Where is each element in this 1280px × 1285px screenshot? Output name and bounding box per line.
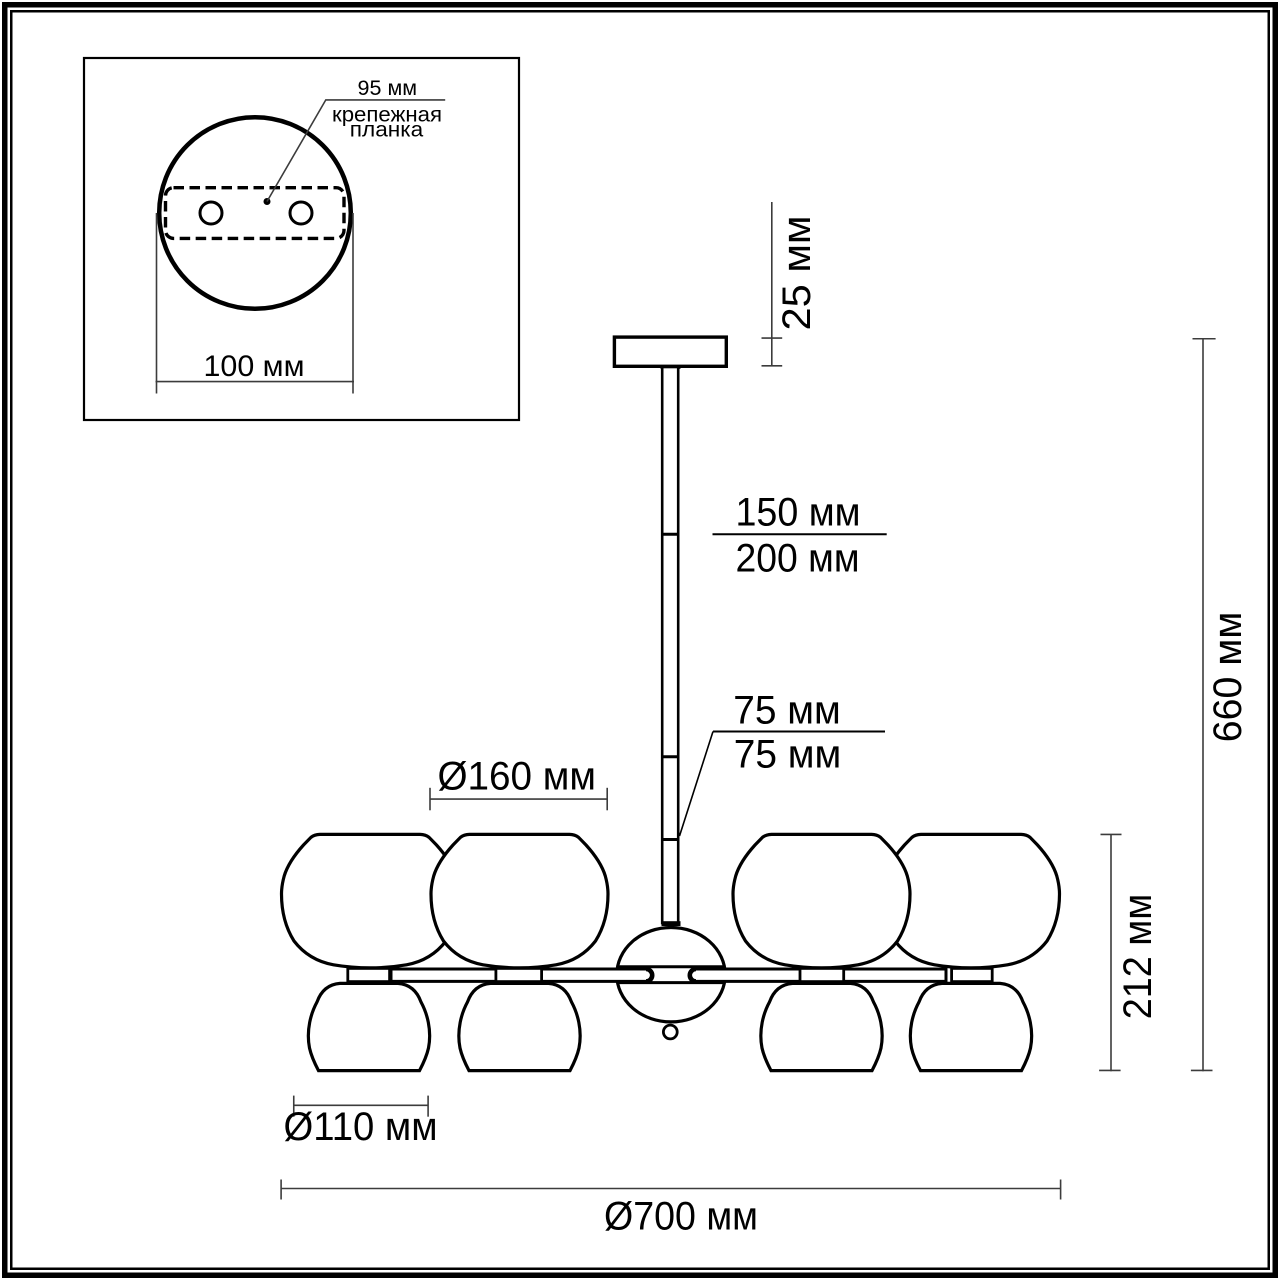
svg-text:100 мм: 100 мм xyxy=(204,350,305,383)
svg-text:200 мм: 200 мм xyxy=(736,536,860,580)
svg-text:95 мм: 95 мм xyxy=(358,77,418,100)
svg-text:Ø110 мм: Ø110 мм xyxy=(284,1105,438,1149)
svg-text:212 мм: 212 мм xyxy=(1116,894,1160,1020)
svg-text:660 мм: 660 мм xyxy=(1206,612,1250,743)
svg-text:25 мм: 25 мм xyxy=(775,216,819,331)
svg-text:150 мм: 150 мм xyxy=(736,490,861,534)
svg-text:75 мм: 75 мм xyxy=(734,733,842,777)
svg-text:Ø160 мм: Ø160 мм xyxy=(437,755,596,799)
svg-text:планка: планка xyxy=(350,118,424,141)
svg-text:75 мм: 75 мм xyxy=(733,689,841,733)
svg-text:Ø700 мм: Ø700 мм xyxy=(604,1194,758,1238)
